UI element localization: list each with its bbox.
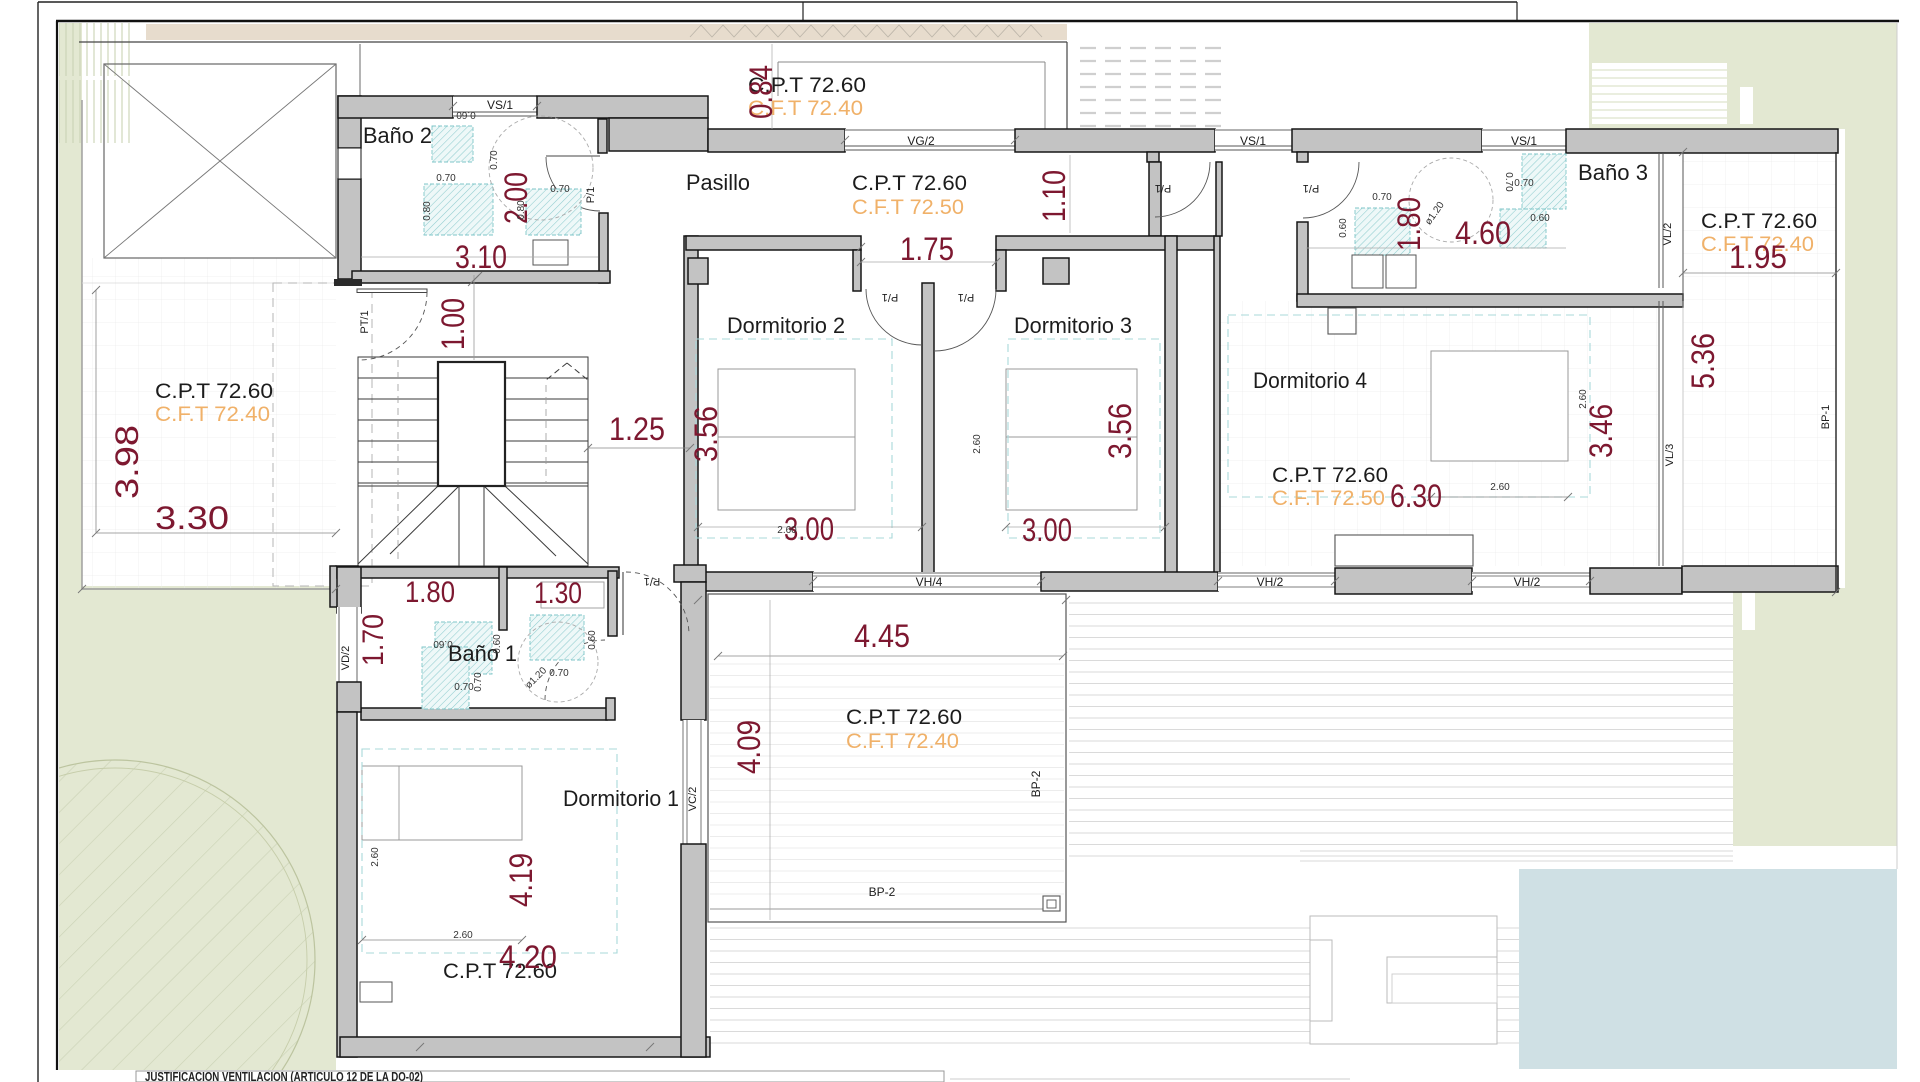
svg-text:C.P.T 72.60: C.P.T 72.60 — [846, 706, 962, 729]
svg-text:VL/3: VL/3 — [1664, 444, 1676, 467]
svg-text:0.70: 0.70 — [454, 682, 474, 693]
svg-text:Dormitorio 3: Dormitorio 3 — [1014, 313, 1132, 338]
svg-text:C.P.T 72.60: C.P.T 72.60 — [155, 380, 273, 403]
svg-text:VH/2: VH/2 — [1257, 575, 1284, 589]
svg-text:0.60: 0.60 — [587, 630, 598, 650]
svg-text:0.80: 0.80 — [422, 201, 433, 221]
svg-text:2.60: 2.60 — [1490, 482, 1510, 493]
svg-text:3.46: 3.46 — [1583, 404, 1619, 458]
svg-text:6.30: 6.30 — [1390, 478, 1442, 514]
svg-text:JUSTIFICACION VENTILACION (ART: JUSTIFICACION VENTILACION (ARTICULO 12 D… — [145, 1069, 423, 1082]
svg-text:0.70: 0.70 — [549, 668, 569, 679]
svg-text:1.75: 1.75 — [900, 231, 954, 267]
svg-text:C.P.T 72.60: C.P.T 72.60 — [1701, 210, 1817, 233]
svg-text:0.70: 0.70 — [1503, 172, 1514, 192]
svg-text:3.10: 3.10 — [455, 239, 507, 275]
svg-text:2.60: 2.60 — [777, 525, 797, 536]
svg-text:C.F.T 72.50: C.F.T 72.50 — [852, 196, 964, 219]
svg-text:VG/2: VG/2 — [907, 134, 935, 148]
svg-text:3.56: 3.56 — [688, 406, 724, 462]
svg-text:BP-1: BP-1 — [1820, 405, 1832, 429]
svg-text:VD/2: VD/2 — [340, 646, 352, 670]
svg-text:VS/1: VS/1 — [487, 98, 513, 112]
svg-text:4.19: 4.19 — [503, 853, 539, 907]
svg-text:Baño 3: Baño 3 — [1578, 160, 1648, 185]
svg-text:1.95: 1.95 — [1729, 239, 1787, 275]
svg-text:0.70: 0.70 — [436, 173, 456, 184]
svg-text:Pasillo: Pasillo — [686, 170, 750, 195]
svg-text:P/1: P/1 — [1303, 182, 1320, 194]
svg-text:VH/4: VH/4 — [916, 575, 943, 589]
svg-text:0.70: 0.70 — [473, 672, 484, 692]
svg-text:VH/2: VH/2 — [1514, 575, 1541, 589]
svg-text:2.60: 2.60 — [453, 930, 473, 941]
svg-text:1.00: 1.00 — [435, 298, 471, 350]
svg-text:BP-2: BP-2 — [1029, 770, 1043, 797]
svg-text:1.25: 1.25 — [609, 411, 665, 447]
svg-text:0.60: 0.60 — [1530, 213, 1550, 224]
svg-text:1.80: 1.80 — [1391, 197, 1427, 251]
svg-text:P/1: P/1 — [585, 187, 597, 204]
svg-text:C.F.T 72.40: C.F.T 72.40 — [155, 403, 270, 426]
svg-text:0.84: 0.84 — [743, 65, 779, 119]
svg-text:0.60: 0.60 — [1338, 218, 1349, 238]
svg-text:0.80: 0.80 — [516, 200, 527, 220]
svg-text:4.60: 4.60 — [1455, 215, 1511, 251]
svg-text:3.00: 3.00 — [1022, 512, 1072, 548]
svg-text:C.P.T 72.60: C.P.T 72.60 — [1272, 464, 1388, 487]
svg-text:2.60: 2.60 — [972, 434, 983, 454]
svg-text:C.P.T 72.60: C.P.T 72.60 — [852, 172, 967, 195]
svg-text:3.30: 3.30 — [155, 500, 229, 536]
svg-text:1.30: 1.30 — [534, 577, 582, 610]
svg-text:Dormitorio 2: Dormitorio 2 — [727, 313, 845, 338]
svg-text:VS/1: VS/1 — [1240, 134, 1266, 148]
svg-text:VL/2: VL/2 — [1662, 223, 1674, 246]
svg-text:0.60: 0.60 — [456, 109, 476, 120]
svg-text:4.20: 4.20 — [499, 939, 557, 975]
svg-text:Dormitorio 1: Dormitorio 1 — [563, 786, 679, 811]
svg-text:1.70: 1.70 — [357, 614, 390, 666]
svg-text:P/1: P/1 — [958, 291, 975, 303]
svg-text:C.F.T 72.40: C.F.T 72.40 — [846, 730, 959, 753]
svg-text:2.60: 2.60 — [1578, 389, 1589, 409]
svg-text:3.56: 3.56 — [1102, 403, 1138, 459]
svg-text:BP-2: BP-2 — [869, 885, 896, 899]
svg-text:5.36: 5.36 — [1685, 333, 1721, 389]
svg-text:Baño 2: Baño 2 — [363, 123, 432, 148]
svg-text:Dormitorio 4: Dormitorio 4 — [1253, 368, 1367, 393]
svg-text:C.F.T 72.50: C.F.T 72.50 — [1272, 487, 1385, 510]
svg-text:1.10: 1.10 — [1036, 170, 1072, 222]
svg-text:0.70: 0.70 — [489, 150, 500, 170]
svg-text:0.60: 0.60 — [433, 638, 453, 649]
svg-text:1.80: 1.80 — [405, 576, 455, 609]
svg-text:0.60: 0.60 — [492, 634, 503, 654]
svg-text:VS/1: VS/1 — [1511, 134, 1537, 148]
svg-text:4.45: 4.45 — [854, 618, 910, 654]
svg-text:P/1: P/1 — [1155, 182, 1172, 194]
svg-text:0.70: 0.70 — [550, 184, 570, 195]
svg-text:2.60: 2.60 — [370, 847, 381, 867]
svg-text:VC/2: VC/2 — [687, 787, 699, 811]
svg-text:P/1: P/1 — [644, 575, 661, 587]
svg-text:0.70: 0.70 — [1514, 178, 1534, 189]
svg-text:0.70: 0.70 — [1372, 192, 1392, 203]
svg-text:PT/1: PT/1 — [359, 310, 371, 333]
svg-text:P/1: P/1 — [882, 291, 899, 303]
svg-text:4.09: 4.09 — [731, 720, 767, 774]
svg-text:Baño 1: Baño 1 — [448, 641, 517, 666]
svg-text:3.98: 3.98 — [109, 425, 145, 499]
